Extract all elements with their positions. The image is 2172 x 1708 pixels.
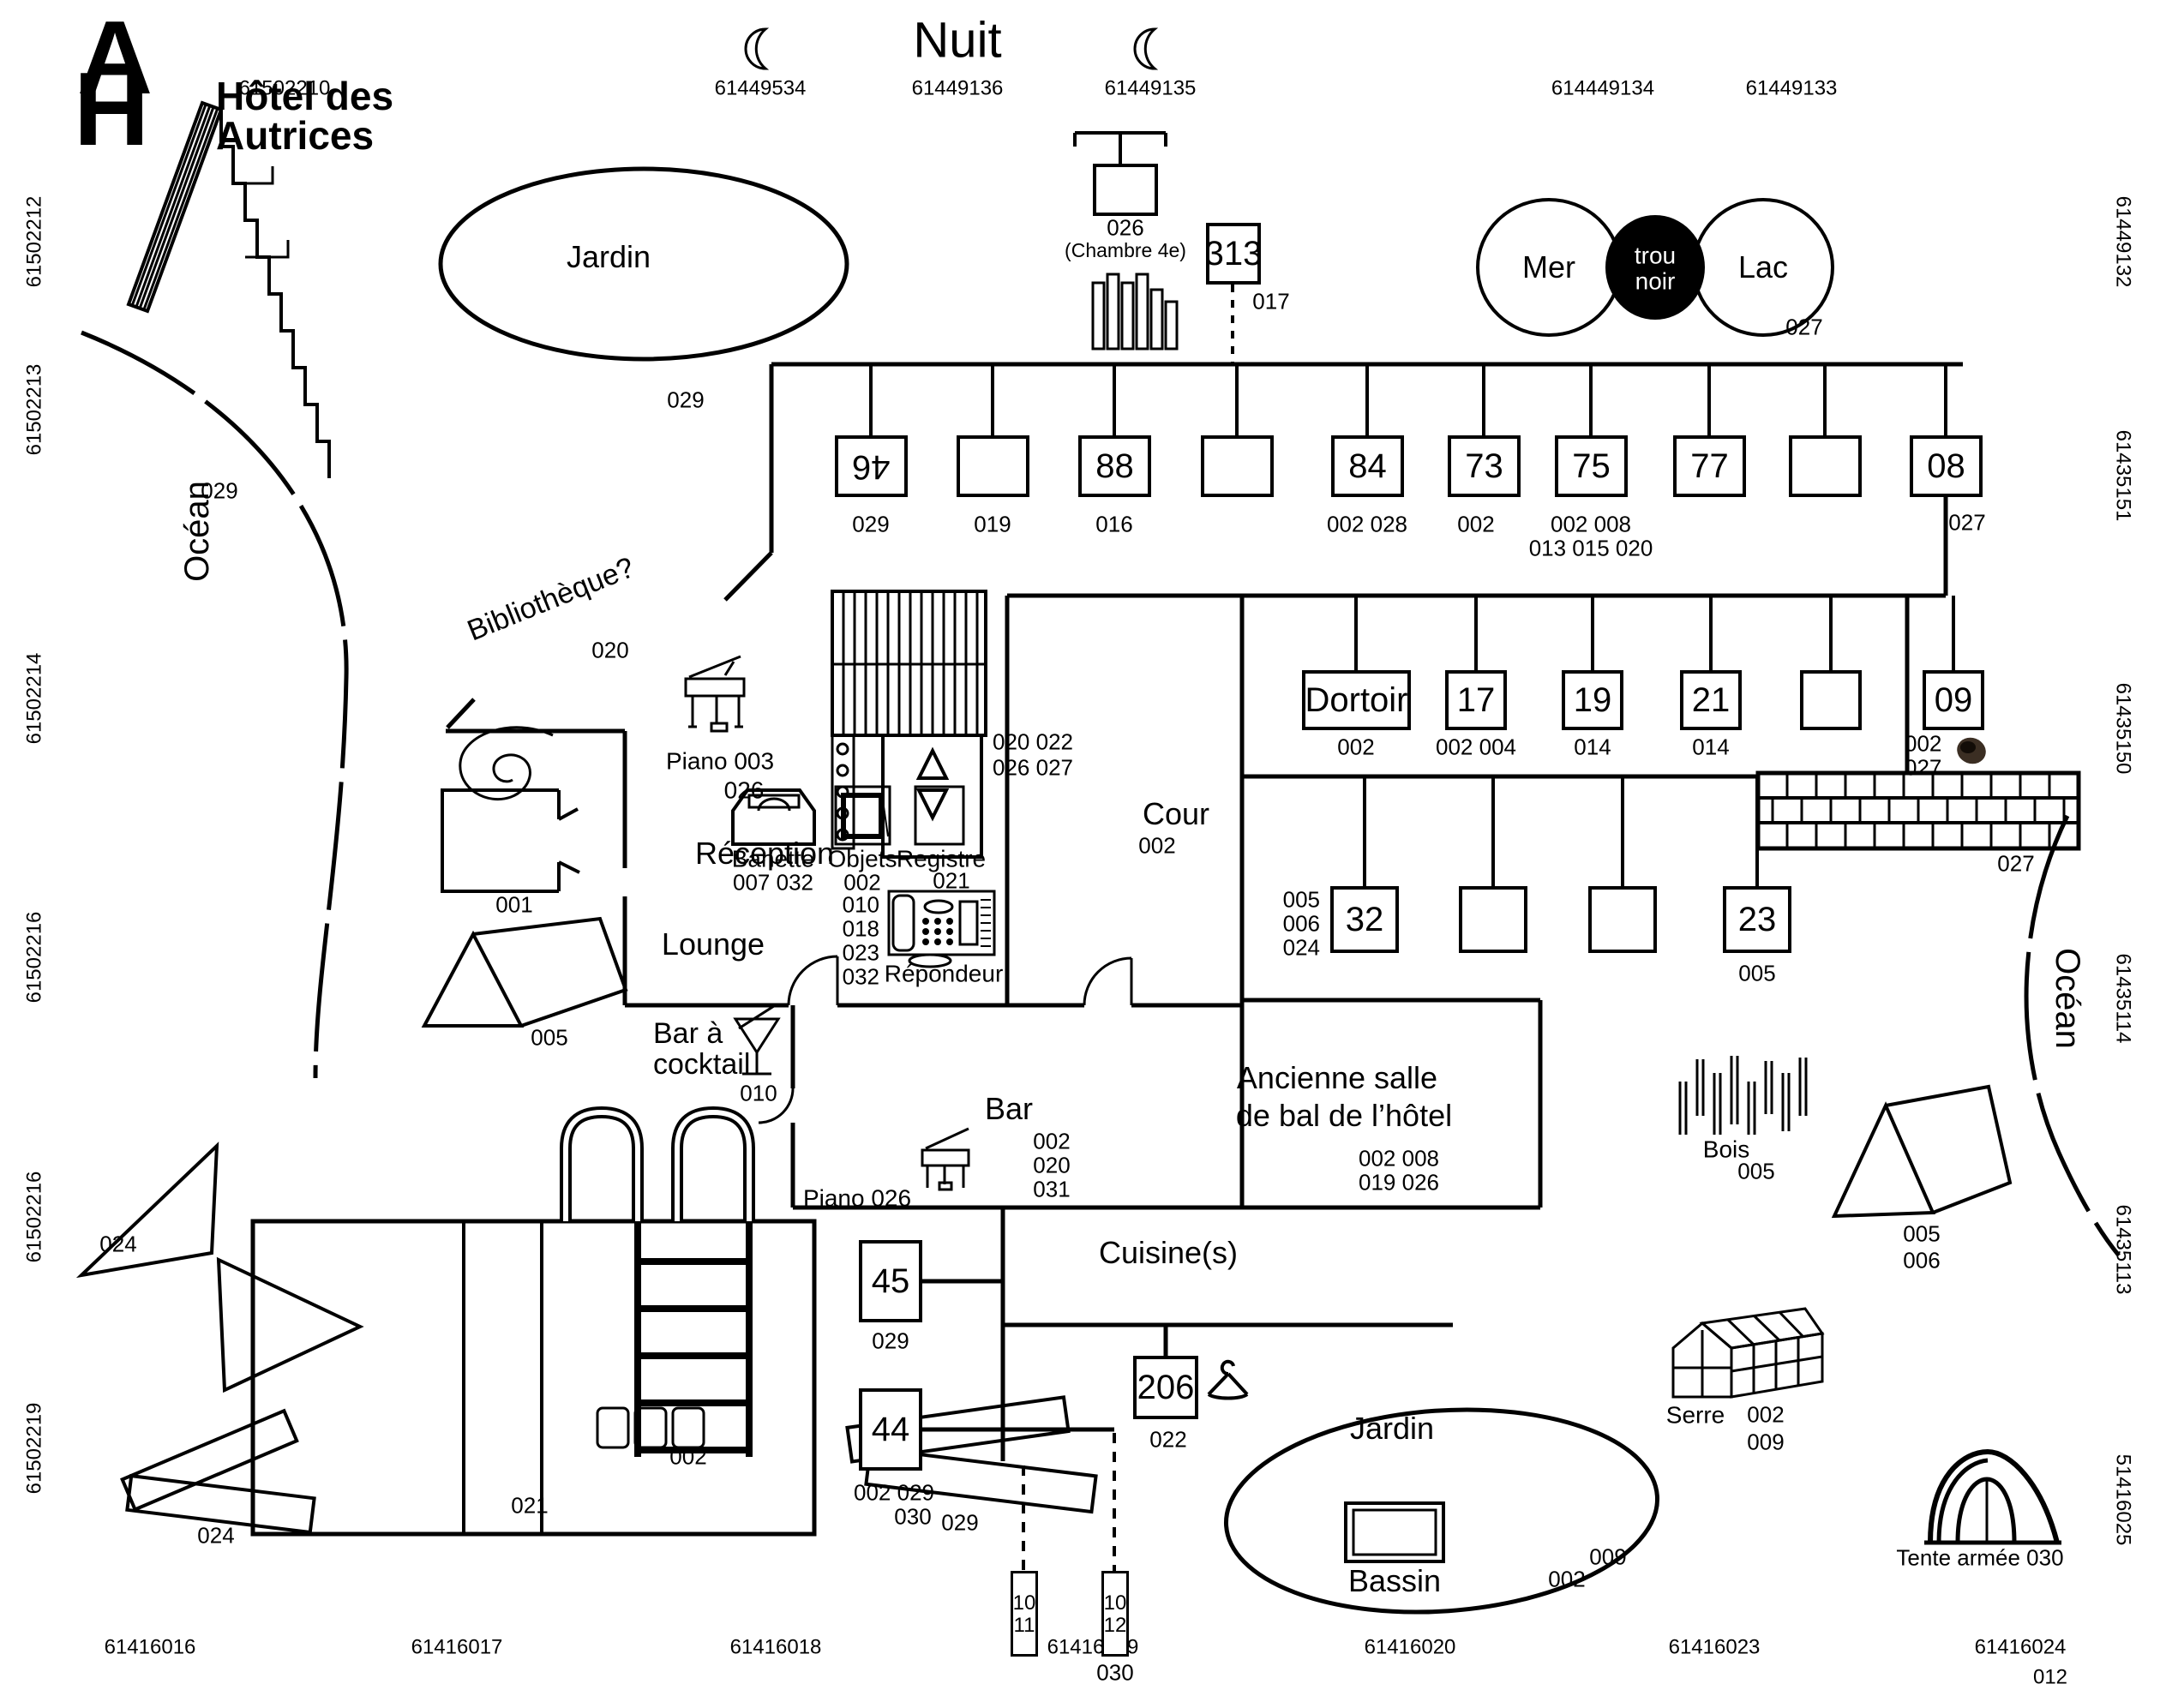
room-number: 206 <box>1137 1369 1195 1407</box>
hanger-icon <box>1209 1362 1247 1399</box>
repondeur-label: Répondeur <box>885 961 1004 986</box>
room-number: 17 <box>1457 681 1496 720</box>
trou-noir-line1: trou <box>1635 243 1676 267</box>
banette-label: Banette <box>732 846 815 871</box>
triangles-note: 024 <box>99 1232 136 1256</box>
room-number: 23 <box>1738 901 1777 939</box>
edge-label-right: 61435151 <box>2112 430 2133 522</box>
edge-label-bottom: 61416024 <box>1975 1636 2067 1657</box>
edge-label-left: 61502219 <box>23 1403 45 1495</box>
room-note: 027 <box>1905 756 1941 779</box>
edge-label-bottom: 61416020 <box>1365 1636 1456 1657</box>
edge-label-bottom: 61416018 <box>730 1636 822 1657</box>
room-number: 09 <box>1935 681 1973 720</box>
serre-note: 009 <box>1747 1430 1784 1453</box>
bassin-label: Bassin <box>1348 1565 1441 1597</box>
edge-label-right: 51416025 <box>2112 1454 2133 1546</box>
room-001-note: 001 <box>495 893 532 916</box>
room-number: 73 <box>1465 447 1503 486</box>
pool-icon <box>253 1221 814 1534</box>
edge-label-left: 61502213 <box>23 364 45 456</box>
edge-label-right: 61435113 <box>2112 1205 2133 1295</box>
brick-wall-note: 027 <box>1997 852 2034 875</box>
brick-wall-icon <box>1758 773 2079 848</box>
edge-label-top: 614449134 <box>1551 77 1654 99</box>
triangles-icon <box>81 1146 360 1390</box>
edge-label-bottom: 61416016 <box>105 1636 196 1657</box>
room-note: 005 <box>1738 962 1775 985</box>
piano-reception-label: Piano 003 <box>666 748 774 773</box>
objets-label: Objets <box>828 846 897 871</box>
edge-label-top: 61449133 <box>1746 77 1838 99</box>
edge-label-right: 61435114 <box>2112 954 2133 1044</box>
room-note: 002 <box>1337 735 1374 758</box>
tent-left-note: 005 <box>531 1026 567 1049</box>
jardin-top-label: Jardin <box>567 241 651 273</box>
room-box-73: 73 <box>1448 435 1521 497</box>
edge-label-top: 61449136 <box>912 77 1004 99</box>
repondeur-note: 010 <box>843 893 879 916</box>
room-note: 002 029 <box>854 1481 934 1504</box>
cuisine-label: Cuisine(s) <box>1099 1237 1238 1269</box>
logo-letter-h: H <box>74 57 149 161</box>
salle-note: 019 026 <box>1359 1171 1439 1194</box>
elevator-note: 020 022 <box>993 730 1073 753</box>
pool-ladder-icon <box>566 1112 749 1457</box>
serre-label: Serre <box>1666 1402 1725 1427</box>
room-box-46: 46 <box>835 435 908 497</box>
tent-right-icon <box>1834 1087 2010 1216</box>
room-box-84: 84 <box>1331 435 1404 497</box>
room-side-note: 005 <box>1283 888 1320 911</box>
room-box-empty <box>1800 670 1862 730</box>
room-box-44: 44 <box>859 1388 922 1471</box>
tent-left-icon <box>424 919 626 1026</box>
room-box-17: 17 <box>1445 670 1507 730</box>
room-number: 46 <box>852 447 891 486</box>
chambre4e-sub: (Chambre 4e) <box>1065 240 1186 261</box>
room-313-note: 017 <box>1252 290 1289 313</box>
room-001-outline <box>442 790 579 891</box>
books-icon <box>1093 274 1177 349</box>
ink-smudge <box>1953 734 1989 768</box>
elevator-icon <box>883 735 981 857</box>
room-box-313: 313 <box>1206 223 1261 285</box>
answering-machine-icon <box>889 891 994 967</box>
repondeur-note: 032 <box>843 965 879 988</box>
room-number: 313 <box>1205 235 1263 273</box>
jardin-bottom-label: Jardin <box>1350 1412 1434 1445</box>
elevator-note: 026 027 <box>993 756 1073 779</box>
room-number: 44 <box>872 1411 910 1449</box>
room-note: 002 <box>1457 512 1494 536</box>
edge-label-bottom: 61416017 <box>411 1636 503 1657</box>
salle-label-line1: Ancienne salle <box>1237 1062 1437 1094</box>
room-note: 002 008 <box>1551 512 1631 536</box>
bar-note: 002 <box>1033 1130 1070 1153</box>
room-box-32: 32 <box>1330 886 1399 953</box>
room-number: Dortoir <box>1305 681 1407 720</box>
room-box-08: 08 <box>1910 435 1983 497</box>
tente-armee-label: Tente armée 030 <box>1896 1546 2063 1569</box>
room-number: 75 <box>1572 447 1611 486</box>
mer-label: Mer <box>1522 251 1575 284</box>
salle-label-line2: de bal de l’hôtel <box>1236 1100 1452 1132</box>
room-box-77: 77 <box>1673 435 1746 497</box>
room-note: 014 <box>1574 735 1611 758</box>
edge-label-bottom: 61416023 <box>1669 1636 1761 1657</box>
ocean-left-arc <box>81 333 346 1078</box>
piano-bar-icon <box>922 1129 969 1190</box>
cour-label: Cour <box>1143 798 1209 830</box>
room-number: 77 <box>1690 447 1729 486</box>
room-number: 45 <box>872 1262 910 1301</box>
trou-noir-line2: noir <box>1635 268 1676 293</box>
ocean-left-label: Océan <box>179 481 215 582</box>
edge-label-right: 61435150 <box>2112 683 2133 775</box>
edge-label-right: 61449132 <box>2112 196 2133 288</box>
planks-left-note: 024 <box>197 1524 234 1547</box>
room-box-empty <box>957 435 1029 497</box>
room-note: 002 <box>1905 732 1941 755</box>
room-number: 19 <box>1574 681 1612 720</box>
tent-right-note: 006 <box>1903 1249 1940 1272</box>
room-note: 029 <box>852 512 889 536</box>
repondeur-note: 018 <box>843 917 879 940</box>
room-note: 030 <box>894 1505 931 1528</box>
room-box-dortoir: Dortoir <box>1302 670 1411 730</box>
pool-squares-note: 002 <box>669 1445 706 1468</box>
room-box-23: 23 <box>1723 886 1791 953</box>
room-note: 002 004 <box>1436 735 1516 758</box>
room-note: 016 <box>1095 512 1132 536</box>
edge-label-left: 61502216 <box>23 912 45 1004</box>
edge-label-top: 61449534 <box>715 77 807 99</box>
room-box-88: 88 <box>1078 435 1151 497</box>
room-number: 21 <box>1692 681 1731 720</box>
planks-left-icon <box>123 1411 315 1532</box>
chambre4e-number: 026 <box>1107 216 1143 239</box>
piano-reception-icon <box>686 656 744 731</box>
room-number: 08 <box>1927 447 1965 486</box>
registre-note: 021 <box>933 869 969 892</box>
pool-note: 021 <box>511 1494 548 1517</box>
jardin-bottom-note: 002 <box>1548 1567 1585 1591</box>
room-number: 84 <box>1348 447 1387 486</box>
bar-note: 020 <box>1033 1154 1070 1177</box>
planks-right-note: 029 <box>941 1511 978 1534</box>
room-box-09: 09 <box>1923 670 1984 730</box>
bibliotheque-note: 020 <box>591 638 628 662</box>
lounge-label: Lounge <box>662 928 765 961</box>
room-box-75: 75 <box>1555 435 1628 497</box>
edge-label-top: 61502210 <box>239 77 331 99</box>
chambre4e-bracket <box>1075 133 1166 164</box>
repondeur-note: 023 <box>843 941 879 964</box>
stairs-icon <box>832 591 986 735</box>
edge-label-left: 61502212 <box>23 196 45 288</box>
serre-note: 002 <box>1747 1403 1784 1426</box>
post-1012-note: 030 <box>1096 1661 1133 1684</box>
bois-icon <box>1680 1056 1806 1135</box>
objets-icon <box>836 787 890 844</box>
room-number: 88 <box>1095 447 1134 486</box>
post-1012-number: 1012 <box>1101 1592 1130 1637</box>
room-box-45: 45 <box>859 1240 922 1322</box>
room-note: 029 <box>872 1329 909 1352</box>
jardin-bottom-note: 009 <box>1589 1545 1626 1568</box>
jardin-top-note: 029 <box>667 388 704 411</box>
hotel-title-line2: Autrices <box>216 115 374 156</box>
tent-right-note: 005 <box>1903 1222 1940 1245</box>
room-box-206: 206 <box>1133 1356 1198 1419</box>
room-box-empty <box>1459 886 1527 953</box>
room-note: 019 <box>974 512 1011 536</box>
greenhouse-icon <box>1673 1309 1822 1397</box>
room-note: 022 <box>1149 1428 1186 1451</box>
piano-reception-note: 026 <box>724 777 765 802</box>
ocean-right-label: Océan <box>2049 948 2085 1049</box>
edge-label-bottom-extra: 012 <box>2033 1666 2067 1687</box>
hotel-map-page: A H Hôtel des Autrices Nuit 61502210 614… <box>0 0 2172 1708</box>
room-side-note: 024 <box>1283 936 1320 959</box>
bois-note: 005 <box>1737 1160 1774 1183</box>
pool-mats-icon <box>597 1408 704 1447</box>
lac-note: 027 <box>1785 315 1822 339</box>
piano-bar-label: Piano 026 <box>803 1185 911 1210</box>
room-note: 013 015 020 <box>1529 536 1653 560</box>
room-box-empty <box>1789 435 1862 497</box>
room-side-note: 006 <box>1283 912 1320 935</box>
room-box-21: 21 <box>1680 670 1742 730</box>
bar-cocktail-line1: Bar à <box>653 1019 723 1050</box>
edge-label-left: 61502214 <box>23 653 45 745</box>
dome-tent-icon <box>1924 1452 2061 1543</box>
bar-label: Bar <box>985 1093 1033 1125</box>
edge-label-left: 61502216 <box>23 1172 45 1263</box>
room-note: 027 <box>1948 511 1985 534</box>
room-box-empty <box>1588 886 1657 953</box>
bar-cocktail-line2: cocktail <box>653 1050 750 1081</box>
post-1011-number: 1011 <box>1010 1592 1039 1637</box>
moon-icon <box>1135 29 1155 69</box>
chambre4e-box <box>1093 164 1158 216</box>
room-number: 32 <box>1346 901 1384 939</box>
room-box-19: 19 <box>1562 670 1623 730</box>
room-box-empty <box>1201 435 1274 497</box>
room-note: 002 028 <box>1327 512 1407 536</box>
bar-note: 031 <box>1033 1178 1070 1201</box>
room-note: 014 <box>1692 735 1729 758</box>
lac-label: Lac <box>1738 251 1788 284</box>
edge-label-top: 61449135 <box>1105 77 1197 99</box>
moon-icon <box>746 29 765 69</box>
bar-cocktail-note: 010 <box>740 1082 777 1105</box>
banette-note: 007 032 <box>733 871 813 894</box>
bassin-icon <box>1346 1503 1443 1561</box>
cour-note: 002 <box>1138 834 1175 857</box>
salle-note: 002 008 <box>1359 1147 1439 1170</box>
page-title-nuit: Nuit <box>913 15 1001 68</box>
